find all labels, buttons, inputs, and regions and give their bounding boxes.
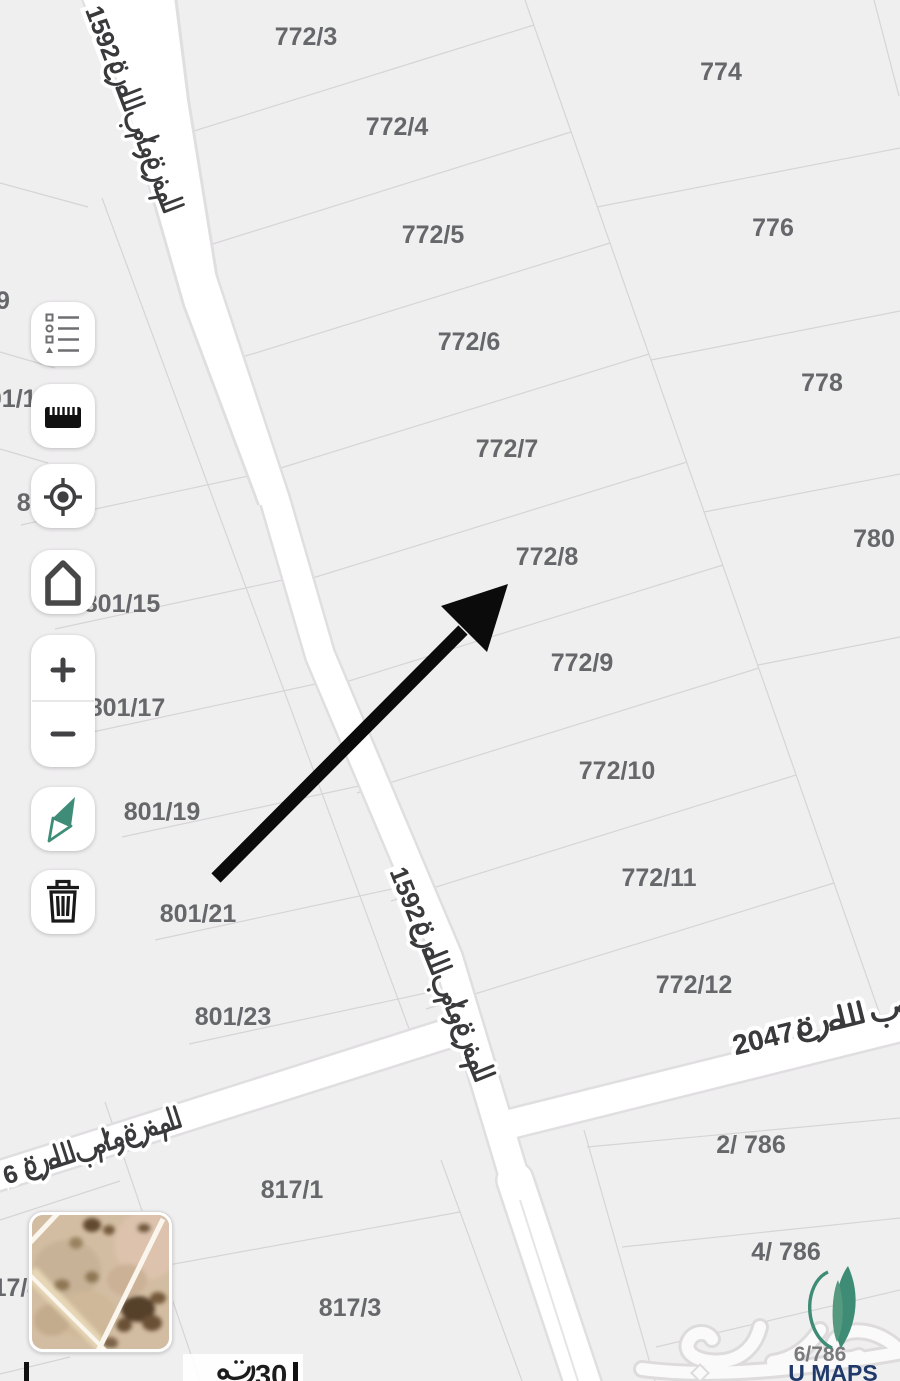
svg-text:30: 30 — [255, 1360, 287, 1381]
svg-text:772/9: 772/9 — [551, 649, 614, 677]
svg-text:772/4: 772/4 — [366, 113, 429, 141]
svg-text:801/23: 801/23 — [195, 1003, 271, 1031]
svg-text:772/5: 772/5 — [402, 221, 465, 249]
svg-text:772/3: 772/3 — [275, 23, 338, 51]
svg-text:4/ 786: 4/ 786 — [751, 1238, 821, 1266]
svg-text:776: 776 — [752, 214, 794, 242]
svg-text:778: 778 — [801, 369, 843, 397]
svg-text:801/17: 801/17 — [89, 694, 165, 722]
svg-text:780: 780 — [853, 525, 895, 553]
svg-text:9: 9 — [0, 287, 10, 315]
svg-text:772/7: 772/7 — [476, 435, 539, 463]
svg-text:801/15: 801/15 — [84, 590, 161, 618]
svg-text:817/3: 817/3 — [319, 1294, 382, 1322]
svg-text:772/10: 772/10 — [579, 757, 655, 785]
svg-text:772/6: 772/6 — [438, 328, 501, 356]
svg-text:2/ 786: 2/ 786 — [716, 1131, 786, 1159]
svg-text:772/12: 772/12 — [656, 971, 732, 999]
svg-text:801/19: 801/19 — [124, 798, 200, 826]
svg-text:772/11: 772/11 — [621, 864, 696, 892]
svg-text:774: 774 — [700, 58, 742, 86]
svg-text:U MAPS: U MAPS — [788, 1360, 877, 1381]
svg-text:817/1: 817/1 — [261, 1176, 324, 1204]
svg-text:772/8: 772/8 — [516, 543, 579, 571]
svg-text:801/21: 801/21 — [160, 900, 237, 928]
